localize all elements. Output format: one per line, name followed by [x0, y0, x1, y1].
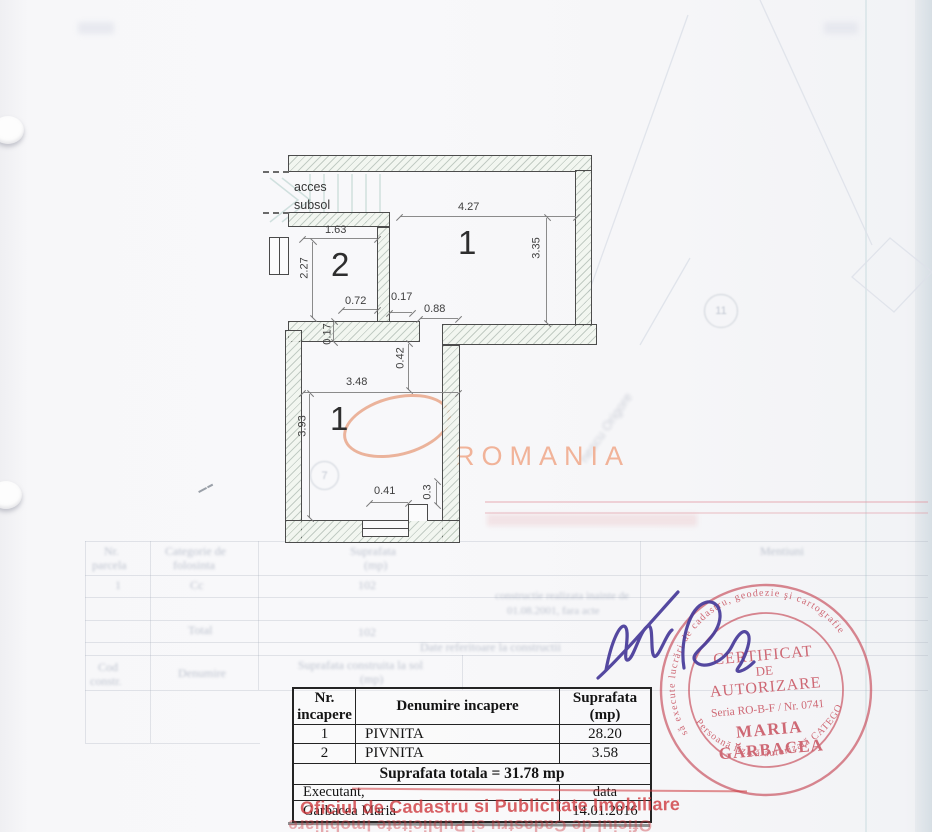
dimension-label: 0.3	[422, 484, 434, 499]
table-total-row: Suprafata totala = 31.78 mp	[294, 764, 650, 785]
table-row: PIVNITA	[356, 725, 560, 744]
opening-dashed-line	[263, 212, 289, 214]
dimension-line	[420, 318, 458, 319]
dimension-label: 0.88	[424, 303, 445, 315]
header-text: Nr.	[315, 690, 335, 707]
step-symbol	[408, 504, 428, 521]
header-text: Suprafata	[573, 690, 637, 707]
dimension-line	[312, 242, 313, 318]
wall-segment	[442, 345, 460, 543]
access-label-line1: acces	[294, 178, 330, 196]
window-symbol-line	[363, 528, 408, 529]
dimension-line	[303, 392, 458, 393]
dimension-label: 0.42	[395, 347, 407, 368]
room-number-label: 2	[331, 246, 349, 284]
dimension-label: 0.41	[374, 485, 395, 497]
dimension-line	[370, 502, 408, 503]
dimension-label: 0.72	[345, 295, 366, 307]
access-basement-label: acces subsol	[294, 178, 330, 214]
table-row: 28.20	[560, 725, 650, 744]
table-row: 3.58	[560, 744, 650, 764]
dimension-line	[342, 309, 377, 310]
stamp-serial: Seria RO-B-F / Nr. 0741	[711, 698, 825, 720]
dimension-label: 2.27	[299, 257, 311, 278]
table-header-nr: Nr. incapere	[294, 689, 356, 725]
dimension-label: 1.63	[325, 224, 346, 236]
dimension-line	[390, 312, 412, 313]
dimension-line	[303, 238, 377, 239]
scanned-cadastral-document: Nr. parcela Categorie de folosinta Supra…	[0, 0, 932, 832]
wall-segment	[288, 155, 592, 172]
dimension-label: 3.93	[297, 415, 309, 436]
table-header-denumire: Denumire incapere	[356, 689, 560, 725]
dimension-line	[546, 218, 547, 323]
table-header-suprafata: Suprafata (mp)	[560, 689, 650, 725]
signature	[592, 578, 782, 688]
dimension-line	[400, 216, 576, 217]
wall-segment	[442, 324, 597, 345]
office-stamp-mirrored-text: Oficiul de Cadastru si Publicitate Imobi…	[288, 815, 652, 832]
stamp-name-line2: GĂRBACEA	[718, 735, 825, 763]
table-row: 2	[294, 744, 356, 764]
header-text: incapere	[297, 707, 352, 724]
window-symbol-line	[279, 238, 280, 274]
dimension-line	[408, 344, 409, 390]
table-row: 1	[294, 725, 356, 744]
room-number-label: 1	[458, 224, 476, 262]
dimension-label: 3.48	[346, 376, 367, 388]
table-row: PIVNITA	[356, 744, 560, 764]
header-text: (mp)	[590, 707, 621, 724]
opening-dashed-line	[263, 171, 289, 173]
dimension-label: 4.27	[458, 201, 479, 213]
dimension-line	[309, 394, 310, 518]
dimension-label: 0.17	[391, 291, 412, 303]
wall-segment	[575, 170, 592, 326]
access-label-line2: subsol	[294, 196, 330, 214]
header-text: Denumire incapere	[396, 698, 518, 715]
dimension-line	[436, 482, 437, 505]
room-number-label: 1	[330, 400, 348, 438]
dimension-label: 0.17	[322, 323, 334, 344]
wall-segment	[288, 321, 420, 342]
dimension-label: 3.35	[531, 237, 543, 258]
